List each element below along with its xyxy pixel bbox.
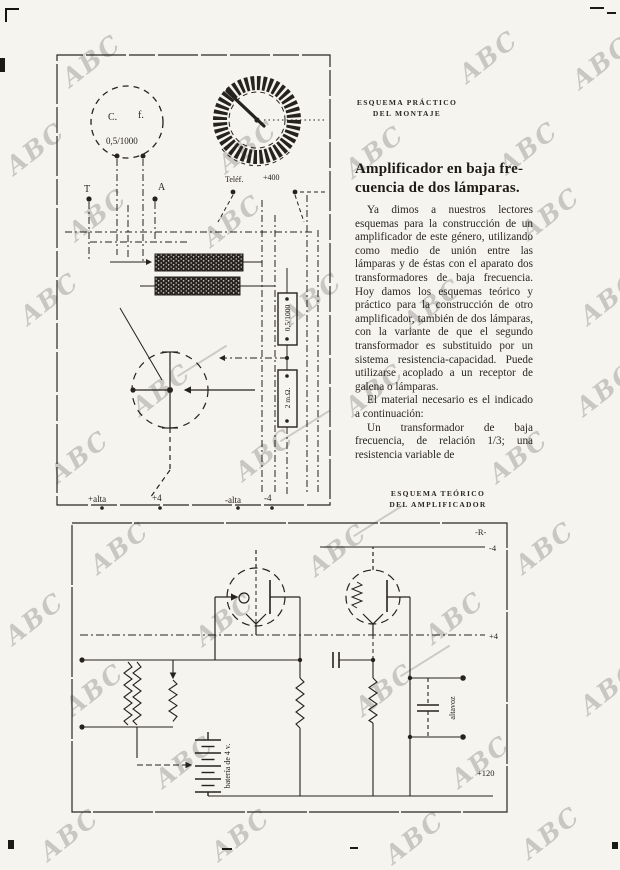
crop-mark <box>607 12 616 14</box>
terminal-label: -alta <box>225 495 241 505</box>
crop-mark <box>350 847 358 849</box>
phone-terminals: Teléf. +400 <box>218 173 326 222</box>
practical-wiring-diagram: C. f. 0,5/1000 T A Teléf. +400 <box>50 50 350 520</box>
abc-watermark: ABC <box>574 656 620 720</box>
terminal-a-label: A <box>158 182 166 193</box>
caption-line: DEL AMPLIFICADOR <box>383 499 493 510</box>
crop-mark <box>0 58 5 72</box>
valve-2 <box>346 547 410 678</box>
valve-1 <box>215 547 300 660</box>
input-network <box>79 657 300 765</box>
resistance-units: 0,5/1000 2 m.Ω. <box>220 268 297 495</box>
transformer-windings <box>110 254 275 295</box>
crop-mark <box>8 840 14 849</box>
minus-4-label: -4 <box>489 543 497 553</box>
rheostat-dial <box>220 83 326 166</box>
condenser-c-label: C. <box>108 112 117 123</box>
caption-line: DEL MONTAJE <box>352 108 462 119</box>
article-column: Amplificador en baja fre- cuencia de dos… <box>355 160 533 462</box>
abc-watermark: ABC <box>453 24 524 88</box>
article-body: Ya dimos a nuestros lectores esquemas pa… <box>355 204 533 462</box>
article-title: Amplificador en baja fre- cuencia de dos… <box>355 160 533 198</box>
scanned-newspaper-page: ABCABCABCABCABCABCABCABCABCABCABCABCABCA… <box>0 0 620 855</box>
schematic-border <box>72 523 507 812</box>
abc-watermark: ABC <box>566 30 620 94</box>
theoretical-schematic: -R- -4 +4 +120 <box>65 518 520 818</box>
practical-diagram-caption: ESQUEMA PRÁCTICO DEL MONTAJE <box>352 97 462 119</box>
variable-condenser-dial: C. f. 0,5/1000 <box>91 86 163 159</box>
battery-label: batería de 4 v. <box>223 744 232 789</box>
title-line: Amplificador en baja fre- <box>355 160 533 179</box>
caption-line: ESQUEMA PRÁCTICO <box>352 97 462 108</box>
article-paragraph: Ya dimos a nuestros lectores esquemas pa… <box>355 204 533 394</box>
terminal-label: +4 <box>152 493 162 503</box>
abc-watermark: ABC <box>570 357 620 421</box>
crop-mark <box>612 842 618 849</box>
abc-watermark: ABC <box>0 586 70 650</box>
valve-socket <box>120 308 255 498</box>
grid-resistor <box>133 662 141 725</box>
plate-resistor <box>296 678 304 728</box>
condenser-f-label: f. <box>138 110 144 121</box>
theoretical-diagram-caption: ESQUEMA TEÓRICO DEL AMPLIFICADOR <box>383 488 493 510</box>
grid-negative-label: -R- <box>475 527 487 537</box>
article-paragraph: El material necesario es el indicado a c… <box>355 394 533 421</box>
phones-label: Teléf. <box>225 175 243 184</box>
crop-mark <box>5 8 19 22</box>
input-terminals: T A <box>84 182 166 202</box>
grid-resistor <box>124 662 132 725</box>
article-paragraph: Un transformador de baja frecuencia, de … <box>355 422 533 463</box>
title-line: cuencia de dos lámparas. <box>355 179 533 198</box>
filament-battery: batería de 4 v. <box>195 732 232 796</box>
resistor-bottom-label: 2 m.Ω. <box>283 387 292 408</box>
supply-rails: -R- -4 +4 +120 <box>80 527 499 796</box>
wiring-leads <box>65 159 318 495</box>
grid-resistor <box>169 680 177 721</box>
resistor-top-label: 0,5/1000 <box>283 305 292 332</box>
terminal-label: -4 <box>264 493 272 503</box>
condenser-value: 0,5/1000 <box>106 136 138 146</box>
speaker-label: altavoz <box>448 696 457 720</box>
terminal-label: +alta <box>88 494 106 504</box>
plus-120-label: +120 <box>477 768 495 778</box>
phones-voltage-label: +400 <box>263 173 280 182</box>
output-network: altavoz <box>408 597 466 796</box>
grid-leak-resistor <box>369 678 377 723</box>
battery-terminals: +alta +4 -alta -4 <box>88 493 274 510</box>
abc-watermark: ABC <box>574 266 620 330</box>
caption-line: ESQUEMA TEÓRICO <box>383 488 493 499</box>
plus-4-label: +4 <box>489 631 499 641</box>
rc-coupling <box>296 597 377 796</box>
crop-mark <box>222 848 232 850</box>
crop-mark <box>590 7 604 9</box>
terminal-t-label: T <box>84 184 90 195</box>
